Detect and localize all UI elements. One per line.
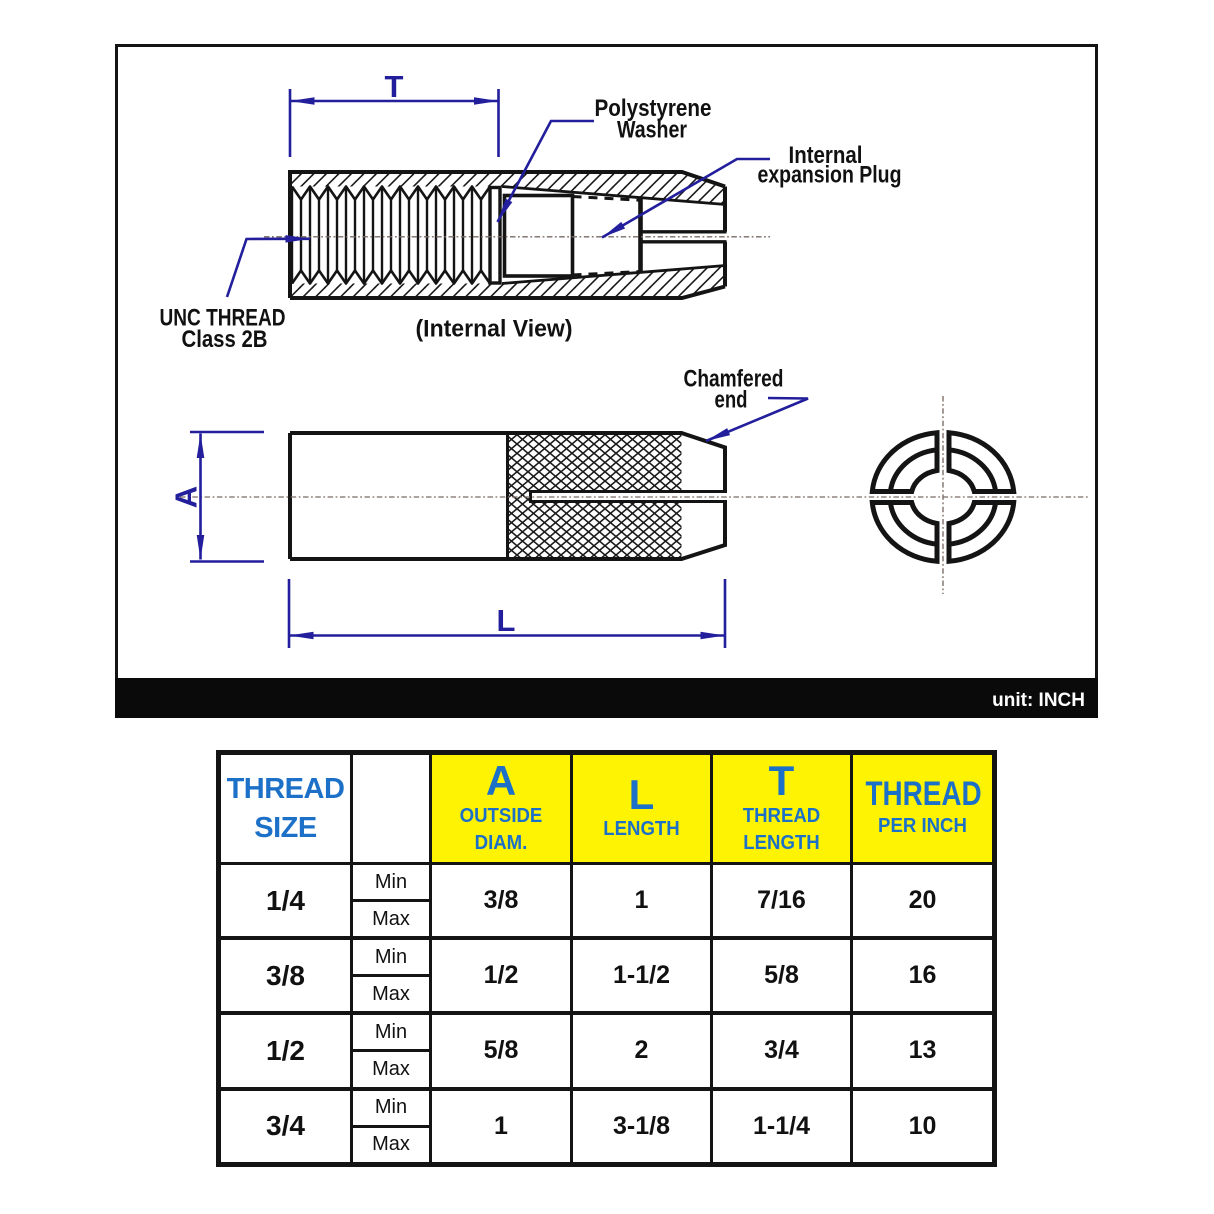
svg-text:A: A	[169, 486, 204, 508]
svg-text:Class 2B: Class 2B	[182, 326, 268, 353]
svg-text:expansion Plug: expansion Plug	[758, 162, 902, 189]
svg-text:Washer: Washer	[617, 117, 687, 144]
svg-text:(Internal View): (Internal View)	[416, 316, 573, 343]
svg-text:unit: INCH: unit: INCH	[992, 690, 1085, 711]
svg-text:end: end	[715, 387, 748, 414]
svg-text:L: L	[497, 603, 516, 638]
svg-text:T: T	[385, 69, 404, 104]
